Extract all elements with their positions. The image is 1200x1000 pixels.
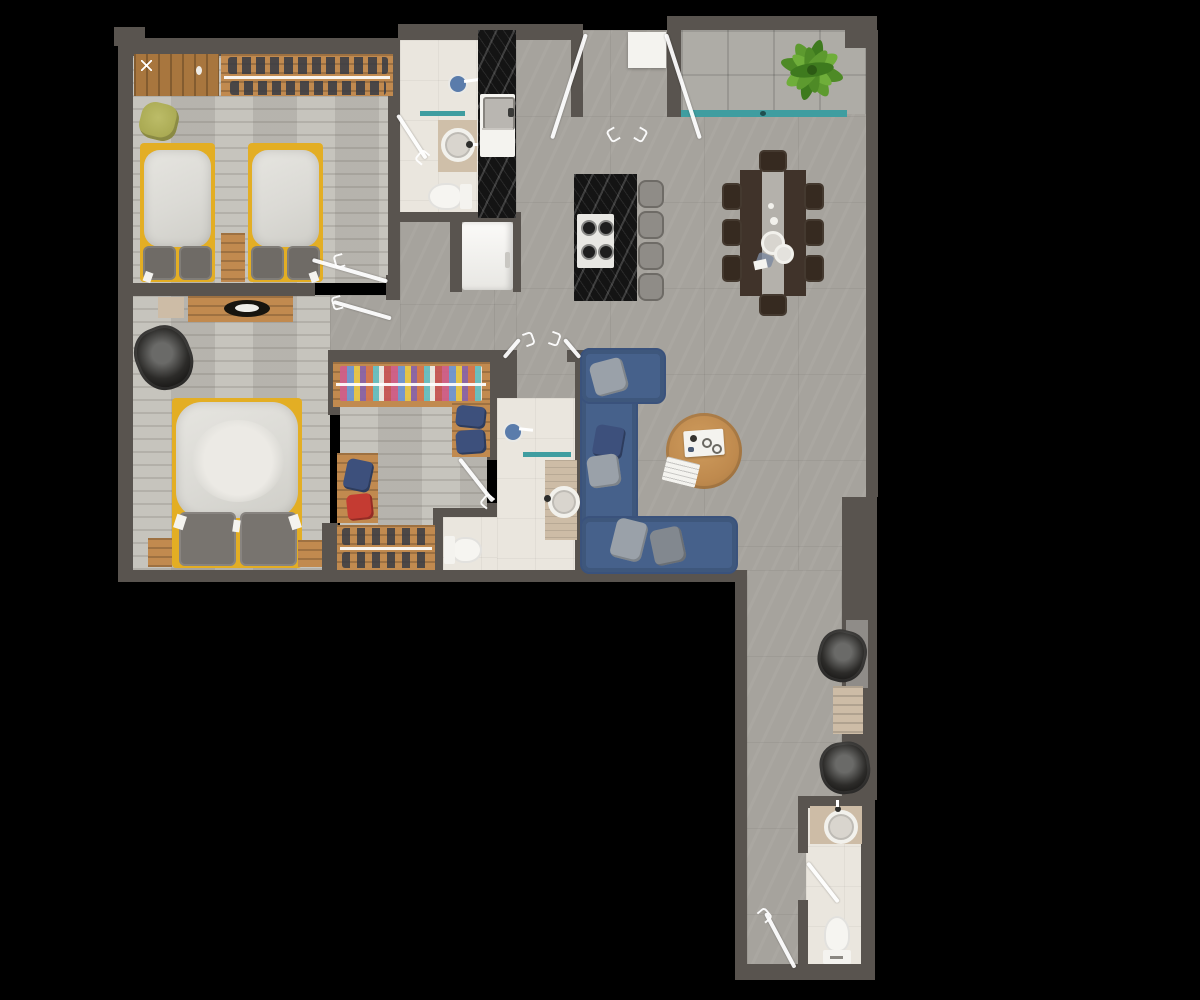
dining-chair-right-3 xyxy=(804,255,824,282)
master-bench xyxy=(158,297,184,318)
shower-head-top xyxy=(448,74,468,94)
bar-stool-2 xyxy=(638,211,664,239)
closet-navy-box-2 xyxy=(455,429,487,455)
wall-ensuite-horizontal xyxy=(433,508,487,517)
dining-chair-right-1 xyxy=(804,183,824,210)
toilet-tank-ensuite xyxy=(444,536,455,564)
toilet-bowl-top xyxy=(428,183,462,210)
table-candle-2 xyxy=(770,217,778,225)
twin-bed-left-pillow-2 xyxy=(179,246,212,280)
shoe-row-top xyxy=(342,528,430,545)
dresser-tv-highlight xyxy=(235,304,259,312)
dining-table-plank-left xyxy=(740,170,762,296)
counter-sink-seam xyxy=(482,128,513,130)
dining-chair-left-3 xyxy=(722,255,742,282)
master-pillow-left xyxy=(179,512,236,566)
wall-fridge-left xyxy=(450,222,462,292)
bar-stool-3 xyxy=(638,242,664,270)
toilet-bowl-ensuite xyxy=(452,537,482,563)
table-candle-1 xyxy=(768,203,774,209)
closet-rail xyxy=(224,76,390,79)
sink-faucet-ensuite xyxy=(544,495,551,502)
master-bed-duvet-fold xyxy=(192,420,284,502)
twin-bed-right-pillow-1 xyxy=(251,246,284,280)
master-nightstand-right xyxy=(298,540,322,567)
burner-3 xyxy=(581,244,597,260)
closet-rail-bar xyxy=(336,383,486,386)
tray-item-4 xyxy=(688,447,694,452)
toilet-tank-top xyxy=(460,184,472,209)
wall-left xyxy=(118,38,133,582)
dining-chair-top xyxy=(759,150,787,172)
table-plate-small xyxy=(774,244,794,264)
closet-navy-box-1 xyxy=(455,404,487,429)
dining-chair-bottom xyxy=(759,294,787,316)
master-nightstand-left xyxy=(148,538,172,567)
hanging-clothes-row-top xyxy=(228,57,388,74)
round-sink-ensuite xyxy=(548,486,580,518)
hanging-clothes-row-bottom xyxy=(230,81,386,95)
entry-doormat xyxy=(628,32,666,68)
shoe-row-bottom xyxy=(342,552,430,568)
shower-glass-shelf-top xyxy=(420,111,465,116)
wall-guestbath-left-upper xyxy=(798,808,808,853)
wall-guestbath-left-lower xyxy=(798,900,808,966)
wall-door-stub xyxy=(386,275,400,300)
burner-4 xyxy=(598,244,614,260)
dining-chair-left-1 xyxy=(722,183,742,210)
wardrobe-knob xyxy=(196,66,202,75)
floor-plan-stage xyxy=(0,0,1200,1000)
sofa-cushion-2 xyxy=(586,453,622,489)
refrigerator-handle xyxy=(505,252,510,268)
twin-bed-left-duvet xyxy=(144,150,211,247)
dining-table-plank-right xyxy=(784,170,806,296)
wall-fridge-right xyxy=(513,222,521,292)
wall-corridor-left xyxy=(735,580,747,966)
tray-item-2 xyxy=(702,438,712,448)
wall-closet-left-lower xyxy=(322,523,338,570)
corridor-console-table xyxy=(833,686,863,734)
wardrobe-x-mark xyxy=(141,60,152,71)
shower-glass-shelf-ensuite xyxy=(523,452,571,457)
shower-head-ensuite xyxy=(503,422,523,442)
wall-guestbath-right xyxy=(861,796,875,968)
toilet-bowl-guest xyxy=(824,916,850,952)
wall-bottom-right xyxy=(735,964,875,980)
burner-2 xyxy=(598,220,614,236)
dining-chair-right-2 xyxy=(804,219,824,246)
twin-bed-right-duvet xyxy=(252,150,319,247)
wall-hall-closet-top xyxy=(330,350,517,362)
glass-railing-post xyxy=(760,111,766,116)
shoe-rack-bar xyxy=(340,547,432,550)
sink-faucet-handle-guest xyxy=(836,800,839,807)
twin-nightstand xyxy=(221,233,245,282)
sink-faucet-top xyxy=(466,141,473,148)
wall-right xyxy=(866,30,878,497)
wall-ensuite-corner xyxy=(487,362,517,398)
dining-chair-left-2 xyxy=(722,219,742,246)
tray-item-3 xyxy=(712,444,722,454)
toilet-flush-guest xyxy=(830,956,843,959)
burner-1 xyxy=(581,220,597,236)
tray-item-1 xyxy=(690,435,697,442)
desk-red-box xyxy=(346,493,375,522)
bar-stool-1 xyxy=(638,180,664,208)
counter-sink-faucet xyxy=(508,108,514,117)
balcony-plant xyxy=(776,34,848,106)
bar-stool-4 xyxy=(638,273,664,301)
round-sink-guest xyxy=(824,810,858,844)
wall-bedroom-bottom xyxy=(118,283,315,296)
